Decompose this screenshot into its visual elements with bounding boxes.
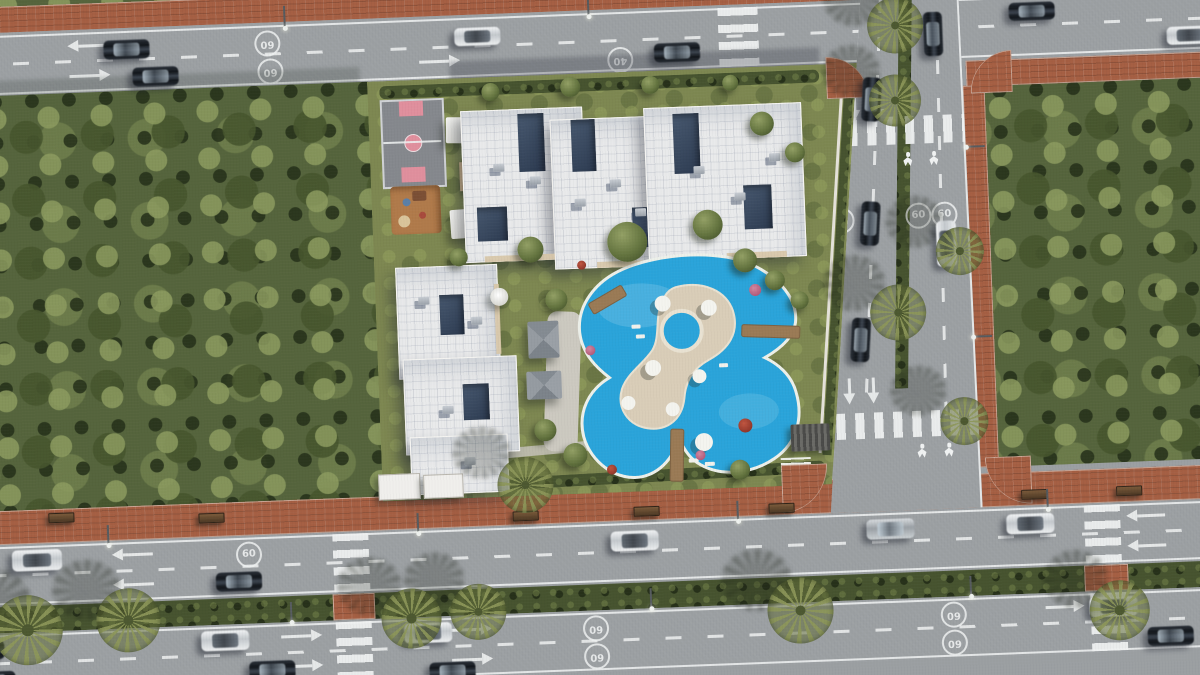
car <box>132 66 179 87</box>
speed-limit-60: 60 <box>940 601 967 628</box>
world: 60 60 40 60 60 60 60 60 <box>0 0 1200 675</box>
north-block-east-wing <box>643 102 807 262</box>
rooftop-ac-unit <box>769 153 780 161</box>
rooftop-ac-unit <box>442 406 453 414</box>
play-dot-red <box>419 212 426 219</box>
speed-limit-label: 60 <box>947 609 961 621</box>
car <box>12 549 63 572</box>
basketball-court <box>380 98 447 189</box>
speed-limit-label: 60 <box>948 637 962 649</box>
pergola-lounge <box>790 423 830 451</box>
rooftop-ac-unit <box>418 297 429 305</box>
car <box>1166 25 1200 45</box>
bench <box>48 512 74 523</box>
rooftop-ac-unit <box>635 208 646 216</box>
sand-pit <box>398 215 410 227</box>
speed-limit-label: 60 <box>260 38 274 50</box>
roof-recess <box>463 383 490 420</box>
court-key-north <box>399 101 424 117</box>
roof-recess <box>517 113 545 172</box>
car <box>610 530 659 552</box>
car <box>454 27 501 47</box>
car <box>216 571 263 592</box>
rooftop-ac-unit <box>530 176 541 184</box>
pedestrian-symbol <box>929 151 939 165</box>
car <box>923 12 944 57</box>
speed-limit-label: 60 <box>242 548 256 560</box>
lane-arrow-west <box>123 552 153 556</box>
lane-arrow-west <box>124 582 154 586</box>
bench <box>1116 485 1142 496</box>
lane-arrow-east <box>281 634 311 638</box>
rooftop-ac-unit <box>610 179 621 187</box>
rooftop-ac-unit <box>471 317 482 325</box>
speed-limit-60: 60 <box>583 615 610 642</box>
gazebo <box>526 371 562 400</box>
car <box>1006 513 1055 535</box>
boundary-wall <box>378 473 421 501</box>
play-dot-blue <box>402 198 410 206</box>
rooftop-ac-unit <box>693 166 704 174</box>
lane-arrow-east <box>419 60 449 64</box>
roof-recess <box>743 184 773 229</box>
lane-arrow-south <box>848 378 852 394</box>
court-key-south <box>401 167 426 183</box>
car <box>201 630 250 652</box>
roof-recess <box>571 119 597 172</box>
speed-limit-label: 60 <box>590 651 604 663</box>
crosswalk-south-west <box>336 621 374 675</box>
aerial-site-render: 60 60 40 60 60 60 60 60 <box>0 0 1200 675</box>
lane-arrow-west <box>1137 513 1165 517</box>
bench <box>633 506 659 517</box>
car <box>429 661 476 675</box>
car <box>654 42 701 63</box>
speed-limit-label: 60 <box>589 623 603 635</box>
lane-arrow-west <box>1138 543 1166 547</box>
forest-east <box>973 75 1200 467</box>
bench <box>1021 489 1047 500</box>
rooftop-ac-unit <box>734 192 745 200</box>
pedestrian-symbol <box>917 444 927 458</box>
boundary-wall <box>423 473 464 499</box>
roof-recess <box>672 113 700 174</box>
pedestrian-symbol <box>944 443 954 457</box>
forest-west <box>0 82 384 517</box>
rooftop-ac-unit <box>575 198 586 206</box>
gazebo <box>527 321 559 359</box>
car <box>860 201 881 246</box>
lane-arrow-south <box>872 377 876 393</box>
roof-recess <box>477 206 508 241</box>
car <box>866 518 915 540</box>
pedestrian-symbol <box>903 152 913 166</box>
island-spa-pool <box>661 310 703 352</box>
speed-limit-60: 60 <box>941 629 968 656</box>
bench <box>198 513 224 524</box>
speed-limit-60: 60 <box>584 643 611 670</box>
roof-recess <box>439 294 465 335</box>
car <box>0 671 16 675</box>
play-structure <box>412 191 426 202</box>
car <box>1008 1 1055 21</box>
car <box>103 39 150 60</box>
rooftop-ac-unit <box>493 164 504 172</box>
car <box>850 318 871 363</box>
car <box>249 660 296 675</box>
bench <box>768 503 794 514</box>
car <box>1147 625 1194 646</box>
playground <box>390 185 442 235</box>
